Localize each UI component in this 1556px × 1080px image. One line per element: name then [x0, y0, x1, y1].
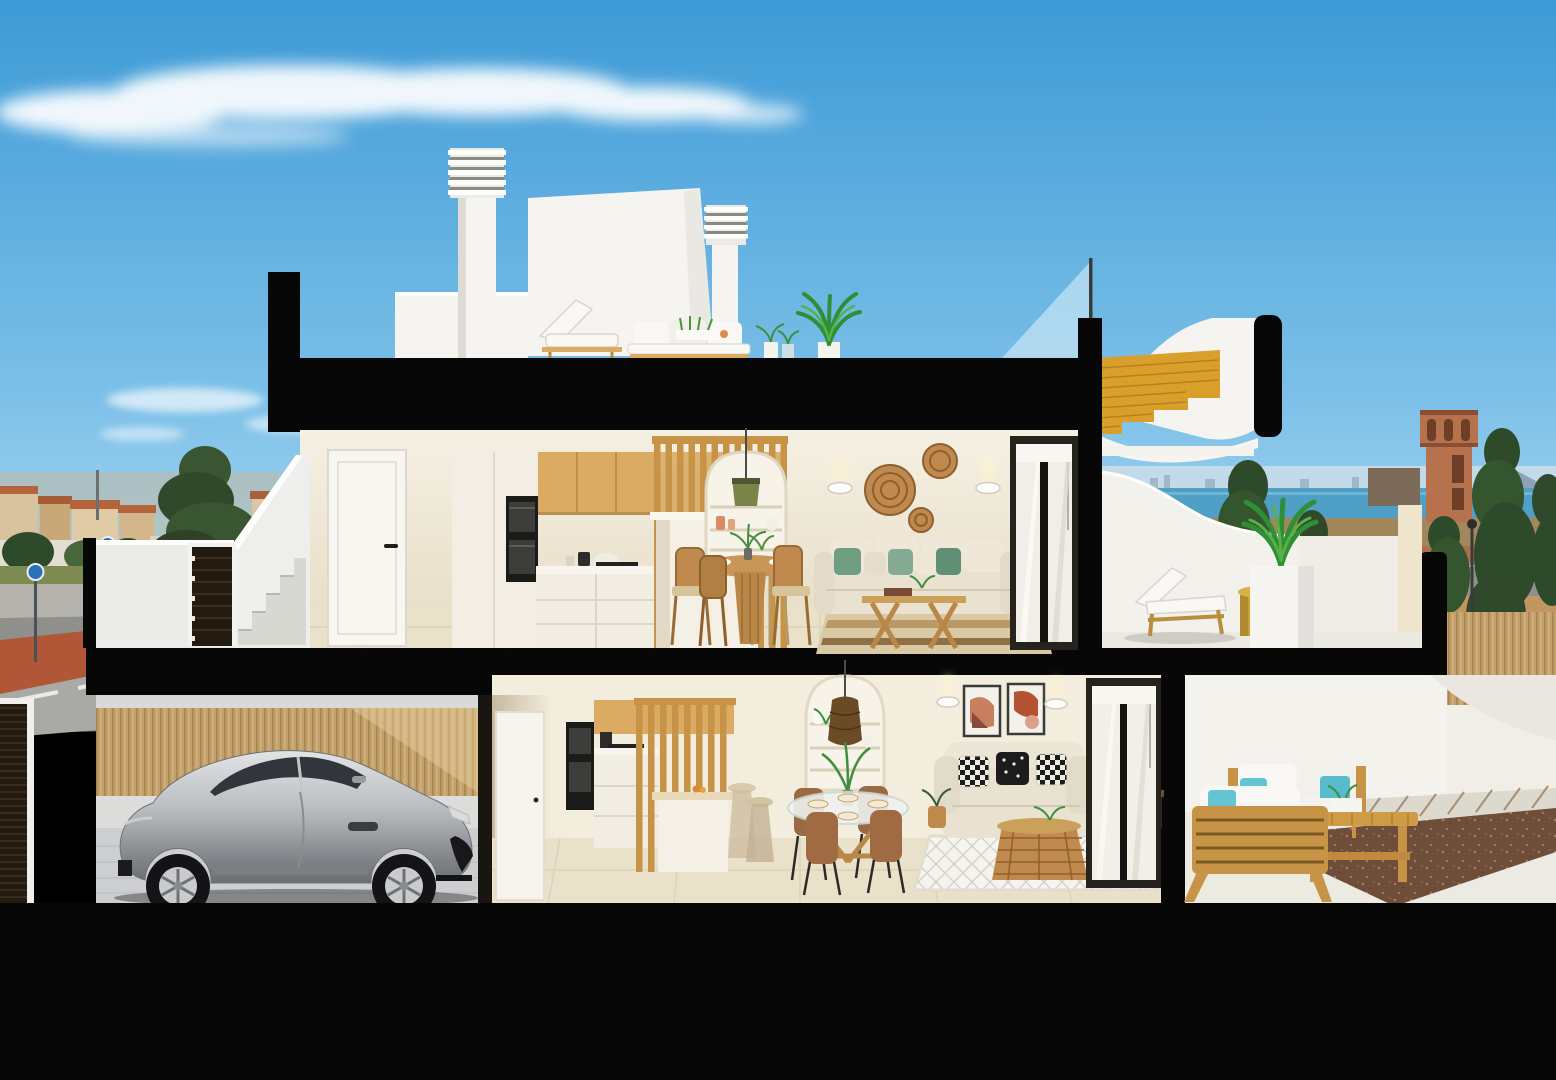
- countertop: [536, 566, 656, 574]
- ff-sliding-door: [1010, 436, 1078, 650]
- gf-island: [652, 786, 734, 873]
- roof-sofa: [628, 316, 750, 358]
- garage-cut-edge: [478, 695, 492, 905]
- cooktop: [596, 562, 638, 566]
- cut-right-column-upper: [1078, 318, 1102, 652]
- cut-right-column-lower: [1161, 652, 1185, 908]
- loveseat-pillows: [958, 752, 1067, 787]
- cut-left-column: [268, 272, 300, 432]
- base-cut-band: [0, 903, 1556, 1080]
- distant-building: [1368, 468, 1420, 506]
- entry-door: [328, 450, 406, 646]
- door-handle: [384, 544, 398, 548]
- architectural-render: [0, 0, 1556, 1080]
- cut-roof-slab: [298, 358, 1082, 432]
- first-floor-interior: [300, 428, 1078, 654]
- upper-wood-cabinets: [538, 452, 656, 514]
- car-rocker: [212, 868, 368, 875]
- ground-terrace: [1184, 675, 1556, 905]
- terrace-right-wall: [1300, 536, 1400, 648]
- car-side-vent: [348, 822, 378, 831]
- garage-door: [0, 698, 34, 906]
- oven-column: [506, 496, 538, 582]
- car-splitter: [436, 875, 472, 881]
- porch-door: [188, 543, 236, 646]
- cut-porch-edge: [83, 538, 96, 648]
- cut-stair-cap: [1254, 315, 1282, 437]
- car-mirror: [352, 776, 366, 783]
- sofa-pillows: [834, 548, 961, 575]
- terrace-cream-wall: [1398, 505, 1422, 648]
- watchtower: [1420, 410, 1478, 522]
- gf-sliding-door: [1086, 678, 1161, 888]
- terrace-ceiling-strip: [1102, 446, 1254, 456]
- ground-floor-interior: [492, 660, 1164, 905]
- sofa-arm: [814, 552, 834, 614]
- cut-terrace-cap: [1420, 552, 1447, 695]
- car-rear-diffuser: [118, 860, 132, 876]
- table-books: [884, 588, 912, 596]
- gf-door: [496, 712, 544, 900]
- scene-canvas: [0, 0, 1556, 1080]
